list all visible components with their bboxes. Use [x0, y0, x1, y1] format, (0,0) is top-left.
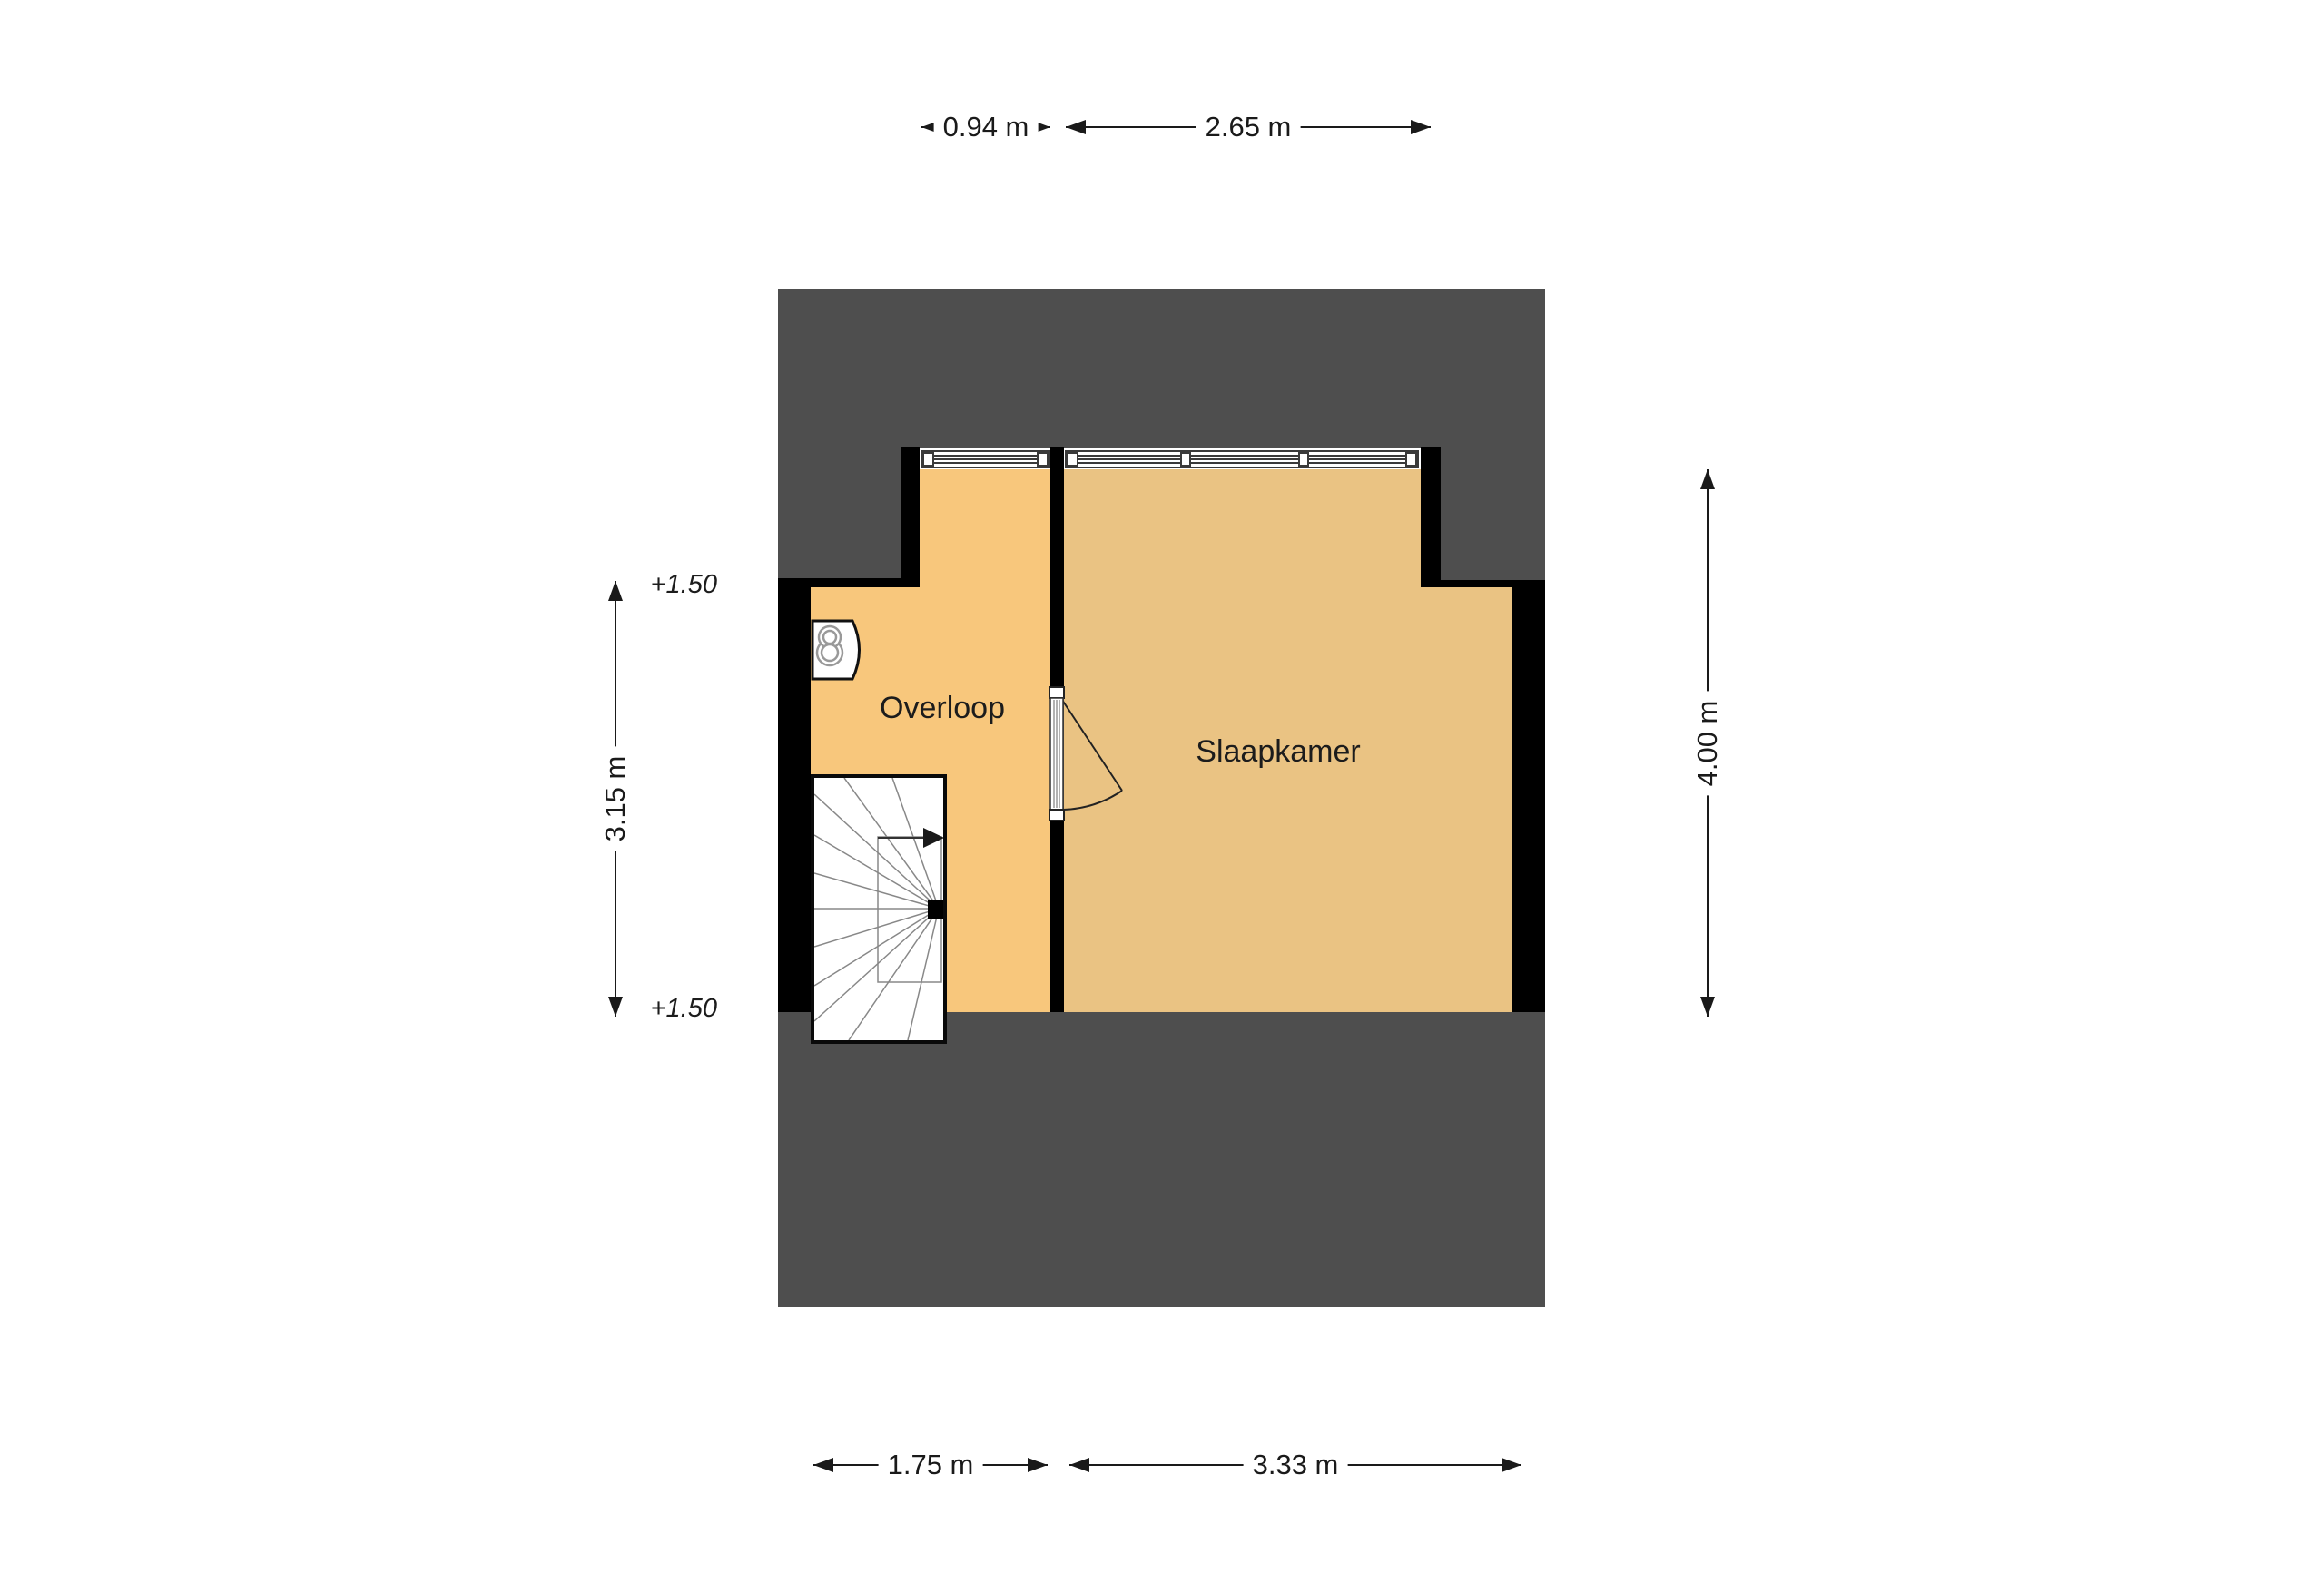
room-label-overloop: Overloop [852, 691, 1033, 726]
window-mullion [1298, 452, 1309, 467]
room-overloop-floor-upper [920, 469, 1050, 585]
level-marker-upper: +1.50 [626, 570, 717, 600]
window-glazing-line [934, 455, 1037, 457]
dimension-label: 2.65 m [1196, 111, 1301, 143]
window-mullion [1037, 452, 1049, 467]
dimension-top-slaapkamer: 2.65 m [1066, 111, 1431, 143]
arrowhead-right-icon [1502, 1458, 1521, 1472]
window-slaapkamer [1065, 450, 1419, 468]
wall-right-outer [1512, 584, 1545, 1012]
door-jamb-bottom [1049, 810, 1064, 821]
wall-interior-top [1050, 447, 1064, 687]
wall-left-outer [778, 585, 811, 1012]
dimension-label: 3.33 m [1244, 1449, 1348, 1481]
arrowhead-left-icon [1066, 120, 1086, 134]
dimension-label: 4.00 m [1691, 691, 1724, 795]
dimension-right-slaapkamer: 4.00 m [1691, 469, 1724, 1017]
window-glazing-line [934, 462, 1037, 464]
floor-plan-page: Overloop Slaapkamer +1.50 +1.50 0.94 m 2… [0, 0, 2324, 1593]
room-slaapkamer-floor-upper [1064, 469, 1421, 584]
door-jamb-top [1049, 687, 1064, 698]
dimension-label: 1.75 m [879, 1449, 983, 1481]
wall-window-post-left [901, 447, 920, 587]
window-mullion [1180, 452, 1191, 467]
stair-direction-arrow [923, 828, 943, 848]
window-mullion [1067, 452, 1078, 467]
window-overloop [921, 450, 1050, 468]
arrowhead-right-icon [1028, 1458, 1048, 1472]
arrowhead-up-icon [608, 581, 623, 601]
arrowhead-left-icon [813, 1458, 833, 1472]
window-mullion [1405, 452, 1417, 467]
window-glazing-line [1078, 458, 1405, 460]
stair-newel-post [928, 900, 943, 919]
door-leaf [1062, 700, 1122, 791]
wall-window-post-right [1421, 447, 1441, 584]
dimension-label: 0.94 m [934, 111, 1039, 143]
arrowhead-left-icon [1069, 1458, 1089, 1472]
dimension-label: 3.15 m [599, 747, 632, 851]
room-label-slaapkamer: Slaapkamer [1142, 734, 1414, 770]
staircase [811, 774, 947, 1044]
stair-treads [814, 778, 939, 1040]
wall-interior-bottom [1050, 821, 1064, 1012]
dimension-bottom-slaapkamer: 3.33 m [1069, 1449, 1521, 1481]
dimension-top-overloop: 0.94 m [921, 111, 1050, 143]
dimension-left-overloop: 3.15 m [599, 581, 632, 1017]
boiler-icon [811, 615, 869, 684]
arrowhead-down-icon [608, 997, 623, 1017]
arrowhead-up-icon [1700, 469, 1715, 489]
window-glazing-line [934, 458, 1037, 460]
window-glazing-line [1078, 455, 1405, 457]
window-mullion [922, 452, 934, 467]
dimension-bottom-overloop: 1.75 m [813, 1449, 1048, 1481]
arrowhead-right-icon [1411, 120, 1431, 134]
door-swing-arc [1063, 791, 1122, 810]
window-glazing-line [1078, 462, 1405, 464]
staircase-drawing [814, 778, 943, 1040]
arrowhead-down-icon [1700, 997, 1715, 1017]
level-marker-lower: +1.50 [626, 994, 717, 1024]
